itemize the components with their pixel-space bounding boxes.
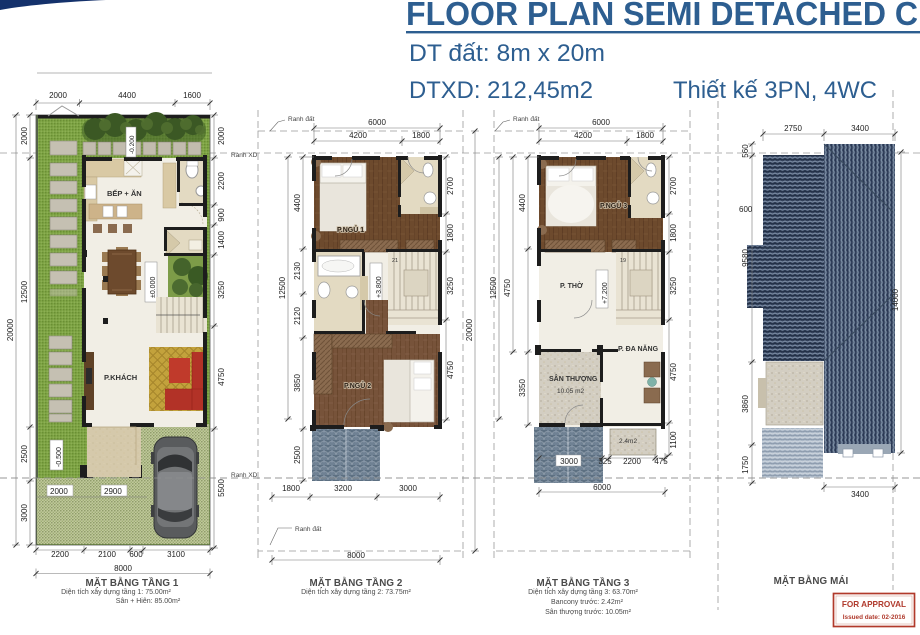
svg-text:2900: 2900 xyxy=(104,487,122,496)
svg-text:P. THỜ: P. THỜ xyxy=(560,281,583,290)
svg-text:12500: 12500 xyxy=(278,276,287,299)
svg-text:2200: 2200 xyxy=(623,457,641,466)
svg-text:19: 19 xyxy=(620,258,626,264)
svg-text:2120: 2120 xyxy=(293,307,302,325)
svg-text:2700: 2700 xyxy=(446,177,455,195)
svg-text:6000: 6000 xyxy=(592,118,610,127)
svg-text:20000: 20000 xyxy=(465,318,474,341)
svg-text:2500: 2500 xyxy=(293,446,302,464)
svg-text:-0.500: -0.500 xyxy=(56,447,63,467)
svg-text:6000: 6000 xyxy=(593,483,611,492)
svg-text:600: 600 xyxy=(129,550,143,559)
svg-text:Diện tích xây dựng tầng 1: 75.: Diện tích xây dựng tầng 1: 75.00m² xyxy=(61,587,171,596)
svg-text:2000: 2000 xyxy=(50,487,68,496)
svg-text:1800: 1800 xyxy=(412,131,430,140)
svg-text:2500: 2500 xyxy=(20,445,29,463)
svg-text:3850: 3850 xyxy=(293,374,302,392)
svg-text:1800: 1800 xyxy=(446,224,455,242)
svg-text:P. ĐA NĂNG: P. ĐA NĂNG xyxy=(618,344,659,353)
svg-text:1600: 1600 xyxy=(183,91,201,100)
svg-text:3250: 3250 xyxy=(446,277,455,295)
svg-text:5500: 5500 xyxy=(217,479,226,497)
svg-text:1800: 1800 xyxy=(669,224,678,242)
svg-text:2750: 2750 xyxy=(784,124,802,133)
svg-text:3400: 3400 xyxy=(851,490,869,499)
svg-text:+7.200: +7.200 xyxy=(602,282,609,304)
svg-text:3860: 3860 xyxy=(741,395,750,413)
svg-text:325: 325 xyxy=(598,457,612,466)
svg-text:-0.200: -0.200 xyxy=(129,135,136,154)
svg-text:4400: 4400 xyxy=(293,194,302,212)
svg-text:Diện tích xây dựng tầng 3: 63.: Diện tích xây dựng tầng 3: 63.70m² xyxy=(528,587,638,596)
svg-text:MẶT BẰNG MÁI: MẶT BẰNG MÁI xyxy=(774,575,849,587)
svg-text:Diện tích xây dựng tầng 2: 73.: Diện tích xây dựng tầng 2: 73.75m² xyxy=(301,587,411,596)
svg-text:±0.000: ±0.000 xyxy=(150,277,157,298)
svg-text:3200: 3200 xyxy=(334,484,352,493)
svg-text:900: 900 xyxy=(217,208,226,222)
svg-text:3250: 3250 xyxy=(669,277,678,295)
svg-text:P.NGỦ 2: P.NGỦ 2 xyxy=(344,381,371,390)
svg-text:4750: 4750 xyxy=(217,368,226,386)
svg-text:Ranh XD: Ranh XD xyxy=(231,152,258,159)
svg-text:1100: 1100 xyxy=(669,431,678,449)
svg-text:2000: 2000 xyxy=(217,127,226,145)
svg-text:4750: 4750 xyxy=(669,363,678,381)
svg-text:2.4m2: 2.4m2 xyxy=(619,438,637,445)
svg-text:MẶT BẰNG TẦNG 3: MẶT BẰNG TẦNG 3 xyxy=(537,578,630,589)
svg-text:4200: 4200 xyxy=(349,131,367,140)
svg-text:Bancony trước: 2.42m²: Bancony trước: 2.42m² xyxy=(551,599,624,606)
svg-text:20000: 20000 xyxy=(6,318,15,341)
svg-text:FOR APPROVAL: FOR APPROVAL xyxy=(842,600,906,609)
svg-text:2000: 2000 xyxy=(49,91,67,100)
svg-text:600: 600 xyxy=(739,205,753,214)
svg-text:9580: 9580 xyxy=(741,249,750,267)
svg-text:1800: 1800 xyxy=(282,484,300,493)
svg-text:475: 475 xyxy=(654,457,668,466)
svg-text:2200: 2200 xyxy=(217,172,226,190)
svg-text:2000: 2000 xyxy=(20,127,29,145)
svg-text:4750: 4750 xyxy=(503,279,512,297)
svg-text:SÂN THƯỢNG: SÂN THƯỢNG xyxy=(549,374,598,383)
svg-text:3000: 3000 xyxy=(560,457,578,466)
svg-text:Ranh đất: Ranh đất xyxy=(288,114,315,123)
svg-text:4200: 4200 xyxy=(574,131,592,140)
svg-text:Thiết kế 3PN, 4WC: Thiết kế 3PN, 4WC xyxy=(673,77,877,104)
svg-text:12500: 12500 xyxy=(489,276,498,299)
svg-text:3250: 3250 xyxy=(217,281,226,299)
svg-text:DT đất: 8m x 20m: DT đất: 8m x 20m xyxy=(409,40,605,67)
svg-text:2200: 2200 xyxy=(51,550,69,559)
svg-text:1800: 1800 xyxy=(636,131,654,140)
svg-text:FLOOR PLAN SEMI DETACHED C: FLOOR PLAN SEMI DETACHED C xyxy=(406,0,918,32)
svg-text:3400: 3400 xyxy=(851,124,869,133)
svg-text:4400: 4400 xyxy=(518,194,527,212)
svg-text:MẶT BẰNG TẦNG 1: MẶT BẰNG TẦNG 1 xyxy=(86,578,179,589)
svg-text:P.NGỦ 3: P.NGỦ 3 xyxy=(600,201,627,210)
svg-text:4400: 4400 xyxy=(118,91,136,100)
svg-text:3000: 3000 xyxy=(20,504,29,522)
svg-text:Issued date: 02-2016: Issued date: 02-2016 xyxy=(843,614,906,621)
svg-text:1400: 1400 xyxy=(217,231,226,249)
svg-text:Sân + Hiên: 85.00m²: Sân + Hiên: 85.00m² xyxy=(116,598,181,605)
svg-text:Ranh đất: Ranh đất xyxy=(513,114,540,123)
svg-text:Ranh đất: Ranh đất xyxy=(295,524,322,533)
svg-text:MẶT BẰNG TẦNG 2: MẶT BẰNG TẦNG 2 xyxy=(310,578,403,589)
svg-text:2100: 2100 xyxy=(98,550,116,559)
svg-text:DTXD: 212,45m2: DTXD: 212,45m2 xyxy=(409,77,593,104)
svg-text:2130: 2130 xyxy=(293,262,302,280)
svg-text:+3.800: +3.800 xyxy=(376,276,383,298)
svg-text:3000: 3000 xyxy=(399,484,417,493)
svg-text:560: 560 xyxy=(741,144,750,158)
svg-text:P.KHÁCH: P.KHÁCH xyxy=(104,373,137,382)
svg-text:1750: 1750 xyxy=(741,456,750,474)
svg-text:6000: 6000 xyxy=(368,118,386,127)
svg-text:Sân thượng trước: 10.05m²: Sân thượng trước: 10.05m² xyxy=(545,609,632,616)
svg-text:10.05 m2: 10.05 m2 xyxy=(557,388,584,395)
svg-text:2700: 2700 xyxy=(669,177,678,195)
svg-text:8000: 8000 xyxy=(114,564,132,573)
svg-text:3100: 3100 xyxy=(167,550,185,559)
svg-text:8000: 8000 xyxy=(347,551,365,560)
svg-text:P.NGỦ 1: P.NGỦ 1 xyxy=(337,225,364,234)
svg-text:21: 21 xyxy=(392,258,398,264)
svg-text:4750: 4750 xyxy=(446,361,455,379)
svg-text:BẾP + ĂN: BẾP + ĂN xyxy=(107,188,142,198)
svg-text:3350: 3350 xyxy=(518,379,527,397)
svg-text:14000: 14000 xyxy=(891,288,900,311)
svg-text:12500: 12500 xyxy=(20,280,29,303)
